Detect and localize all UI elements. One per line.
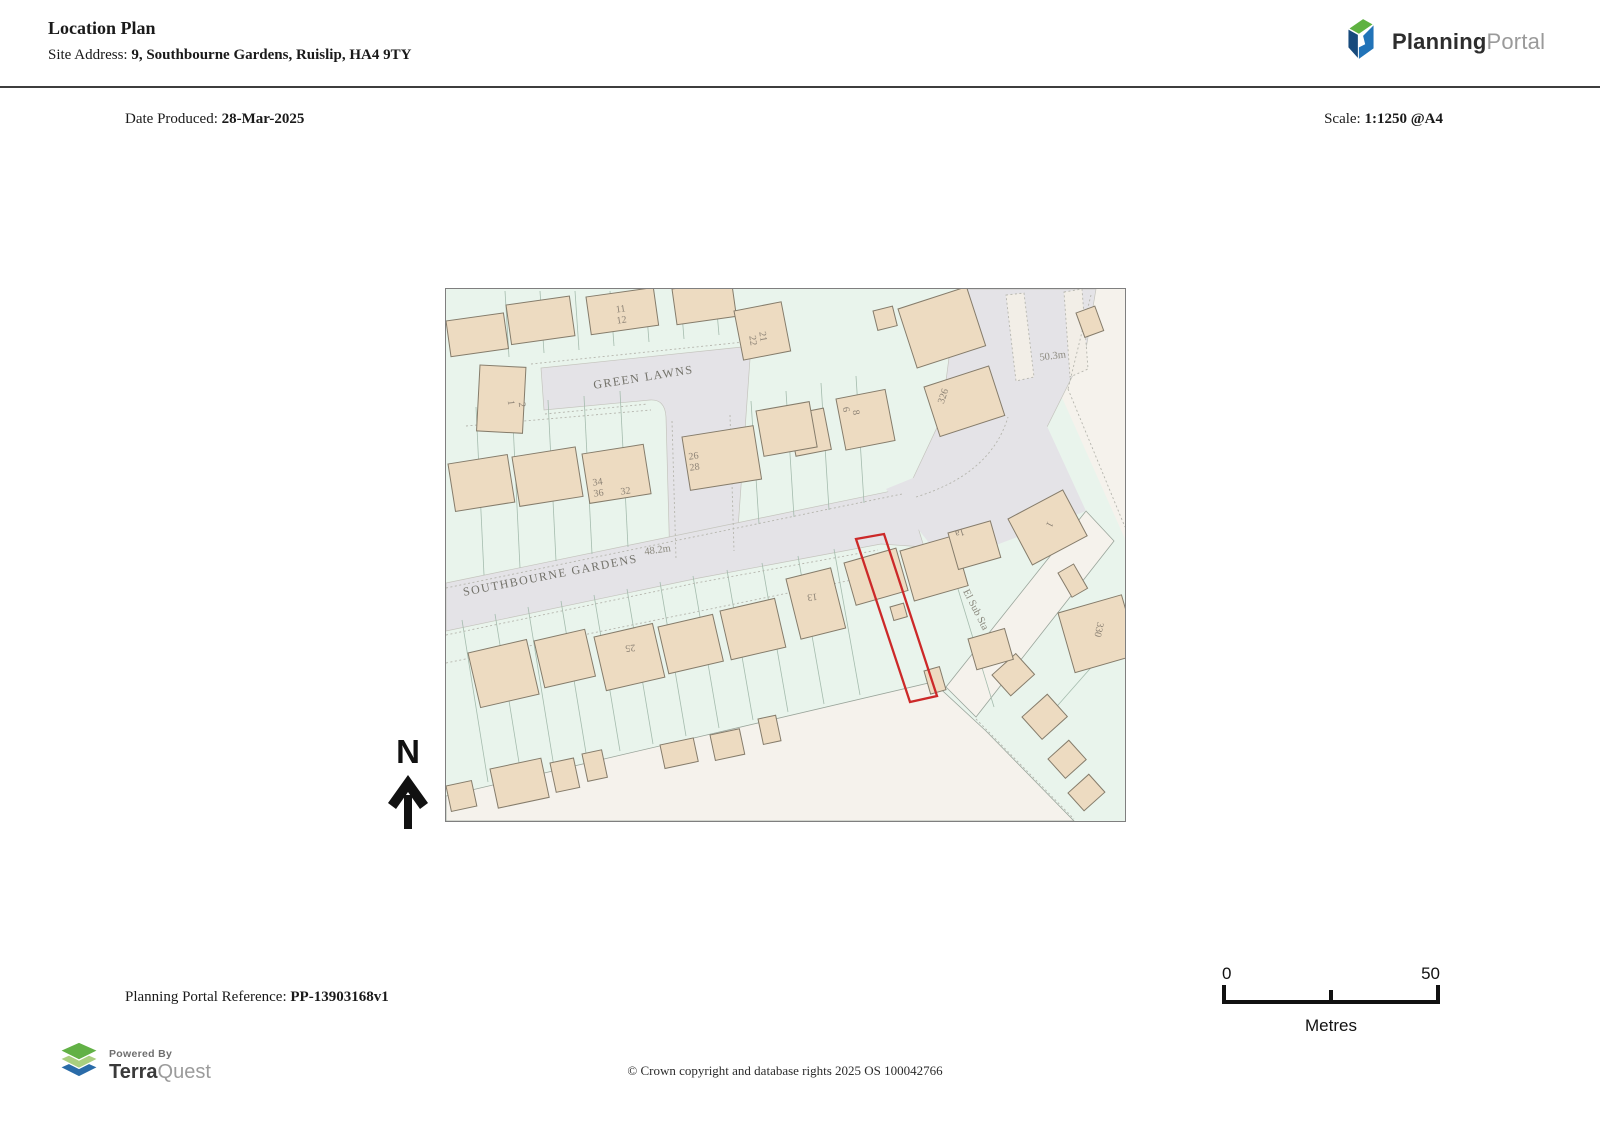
site-address-value: 9, Southbourne Gardens, Ruislip, HA4 9TY [131,47,411,63]
north-label: N [396,733,420,771]
date-produced-value: 28-Mar-2025 [222,111,305,127]
map-label-housenum: 12 [616,314,627,326]
scale-bar-baseline [1222,1000,1440,1004]
north-indicator: N [385,733,431,829]
scale-bar-track [1222,984,1440,1004]
map-label-housenum: 32 [620,485,631,497]
site-address: Site Address: 9, Southbourne Gardens, Ru… [48,47,411,64]
planning-portal-wordmark: PlanningPortal [1392,29,1545,55]
page-title: Location Plan [48,18,156,39]
header-divider [0,86,1600,88]
location-plan-document: Location Plan Site Address: 9, Southbour… [0,0,1600,1132]
map-svg: GREEN LAWNS SOUTHBOURNE GARDENS 48.2m 50… [446,289,1125,821]
map-canvas: GREEN LAWNS SOUTHBOURNE GARDENS 48.2m 50… [445,288,1126,822]
map-label-housenum: 25 [625,641,636,653]
reference-label: Planning Portal Reference: [125,989,290,1005]
scale-bar: 0 50 Metres [1222,964,1440,1042]
planning-portal-logo: PlanningPortal [1338,16,1545,67]
planning-reference: Planning Portal Reference: PP-13903168v1 [125,989,389,1006]
north-arrow-icon [385,773,431,829]
powered-by-label: Powered By [109,1049,211,1060]
scale-bar-unit: Metres [1222,1016,1440,1036]
date-produced-label: Date Produced: [125,111,222,127]
scale-info: Scale: 1:1250 @A4 [1324,111,1443,128]
map-label-housenum: 13 [807,590,818,602]
brand-planning: Planning [1392,29,1487,54]
date-produced: Date Produced: 28-Mar-2025 [125,111,304,128]
scale-bar-end: 50 [1421,964,1440,984]
site-address-label: Site Address: [48,47,131,63]
planning-portal-icon [1338,16,1384,67]
scale-value: 1:1250 @A4 [1364,111,1443,127]
map-label-housenum: 22 [746,335,758,347]
map-label-housenum: 36 [593,487,604,499]
scale-label: Scale: [1324,111,1364,127]
scale-bar-start: 0 [1222,964,1231,984]
brand-portal: Portal [1487,29,1546,54]
map-label-housenum: 28 [689,461,700,473]
reference-value: PP-13903168v1 [290,989,388,1005]
copyright-text: © Crown copyright and database rights 20… [0,1063,1570,1079]
